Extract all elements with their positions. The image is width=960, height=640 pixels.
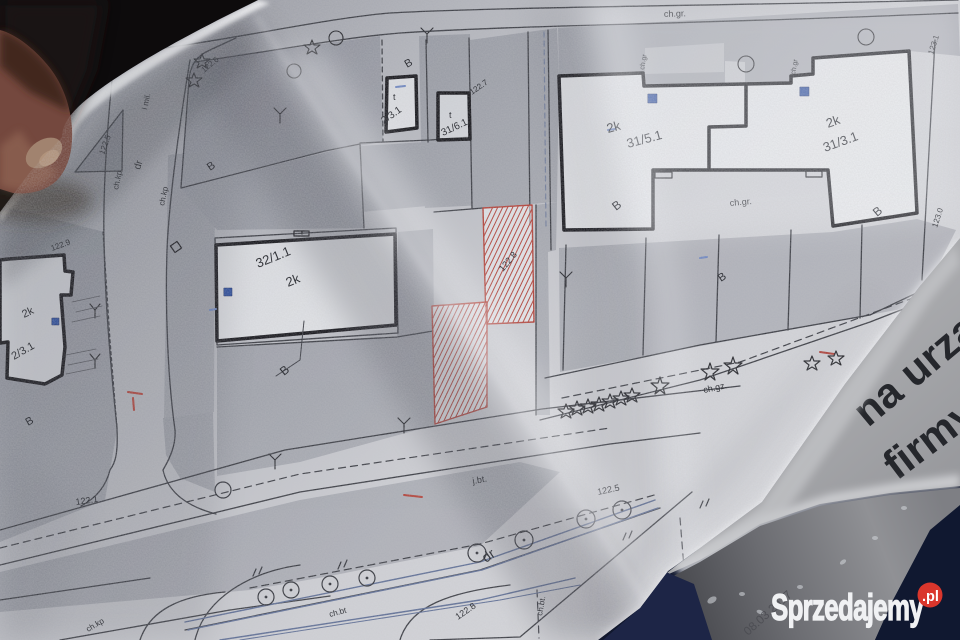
svg-text:.pl: .pl bbox=[922, 589, 939, 605]
svg-text:Sprzedajemy: Sprzedajemy bbox=[771, 586, 924, 628]
